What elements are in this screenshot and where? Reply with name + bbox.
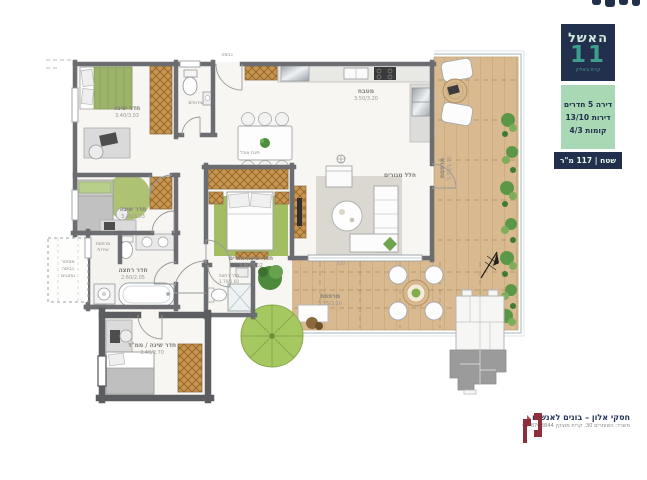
spec-apartments: דירות 13/10 xyxy=(565,113,610,122)
bedroom1-dims: 3.40/3.03 xyxy=(115,113,139,119)
kitchen-label: מטבח xyxy=(358,88,374,95)
wardrobe xyxy=(150,177,172,209)
toilet-label: שירותים xyxy=(188,101,204,106)
tv xyxy=(297,198,302,226)
wardrobe xyxy=(208,169,288,189)
apartment-area: שטח | 117 מ"ר xyxy=(554,152,622,169)
kitchen-dims: 3.50/3.20 xyxy=(354,96,378,102)
ledge-dashes xyxy=(46,60,73,68)
living-label: חלל מגורים xyxy=(384,172,416,179)
laundry-label-3: ומזגנים xyxy=(61,274,75,279)
wardrobe xyxy=(178,344,202,392)
spec-floors: קומות 4/3 xyxy=(569,126,606,135)
balcony-main-dims: 5.75/3.10 xyxy=(318,301,342,307)
developer-logo-icon xyxy=(522,413,543,443)
master-bath-dims: 1.70/1.60 xyxy=(219,279,239,284)
bedroom1-label: חדר שינה xyxy=(114,105,141,112)
developer-strip: חסקי אלון – בונים לאנשים משרד: השומרים 3… xyxy=(522,413,630,429)
bedroom2-dims: 3.45/3.03 xyxy=(121,214,145,220)
entrance-label: כניסה xyxy=(221,53,233,58)
project-number: 11 xyxy=(570,45,606,66)
key-plan-unit-highlight xyxy=(450,350,506,390)
dining-set xyxy=(238,113,292,174)
service-label-1: מרפסת xyxy=(96,242,111,247)
project-city: קרית ביאליק xyxy=(575,68,600,73)
spec-rooms: דירה 5 חדרים xyxy=(564,100,612,109)
master-dims: 3.60/3.02 xyxy=(239,263,263,269)
bathroom-dims: 2.60/2.05 xyxy=(121,275,145,281)
laundry-label-1: מסתור xyxy=(62,260,75,265)
bedroom2-label: חדר שינה xyxy=(120,206,147,213)
apartment-specs: דירה 5 חדרים דירות 13/10 קומות 4/3 xyxy=(561,85,615,149)
balcony-main-label: מרפסת xyxy=(320,293,340,300)
cropped-header-marks xyxy=(592,0,642,9)
laundry-label-2: כביסה xyxy=(62,267,75,272)
bathroom-label: חדר רחצה xyxy=(118,267,147,274)
service-label-2: שירות xyxy=(97,248,109,253)
balcony-side-dims: 5.70/1.75 xyxy=(447,156,453,180)
balcony-side-label: מרפסת xyxy=(439,158,446,178)
floorplan-page: כניסה חדר שינה 3.40/3.03 חדר שינה 3.45/3… xyxy=(0,0,647,480)
key-plan xyxy=(450,290,506,394)
master-label: חדר שינה הורים xyxy=(229,255,273,262)
mamad-label: חדר שינה / ממ"ד xyxy=(128,342,176,349)
master-bedroom-furniture xyxy=(208,169,289,259)
dining-label: פינת אוכל xyxy=(240,150,260,156)
mamad-dims: 3.40/2.70 xyxy=(140,350,164,356)
wardrobe xyxy=(150,66,172,134)
project-logo: האשל 11 קרית ביאליק xyxy=(561,24,615,81)
floor-plan: כניסה חדר שינה 3.40/3.03 חדר שינה 3.45/3… xyxy=(0,0,647,480)
living-dim-note: 430 xyxy=(337,261,345,266)
entry-console xyxy=(245,66,277,80)
